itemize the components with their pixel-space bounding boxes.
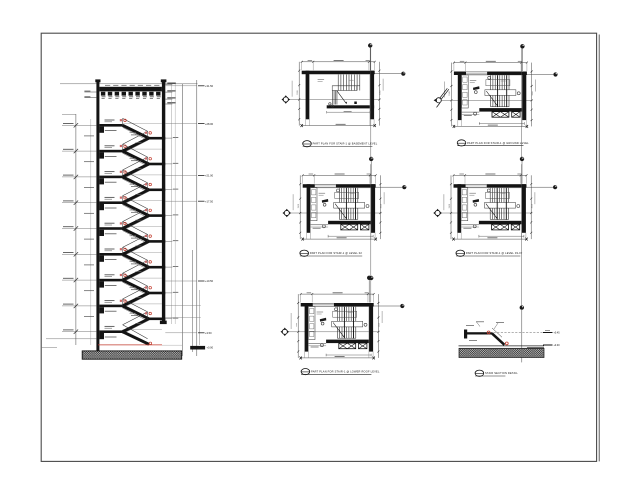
svg-text:+17.50: +17.50 (205, 199, 214, 203)
svg-text:+0.00: +0.00 (554, 344, 561, 347)
svg-text:1500: 1500 (298, 204, 300, 208)
svg-text:+28.00: +28.00 (205, 122, 214, 126)
svg-text:PART PLAN FOR STAIR-1 @ LEVEL: PART PLAN FOR STAIR-1 @ LEVEL 03-07 (466, 251, 523, 255)
svg-text:1500: 1500 (296, 323, 298, 327)
svg-text:PART PLAN FOR STAIR-1 @ GROUND: PART PLAN FOR STAIR-1 @ GROUND LEVEL (467, 141, 529, 145)
svg-text:3050: 3050 (532, 91, 534, 95)
svg-text:3050: 3050 (531, 204, 533, 208)
svg-text:1500: 1500 (449, 204, 451, 208)
svg-text:+10.50: +10.50 (205, 279, 214, 283)
svg-text:PART PLAN FOR STAIR-1 @ LEVEL: PART PLAN FOR STAIR-1 @ LEVEL 02 (310, 251, 363, 255)
svg-text:+21.00: +21.00 (205, 174, 214, 178)
svg-text:3050: 3050 (381, 204, 383, 208)
svg-text:3050: 3050 (380, 91, 382, 95)
svg-text:3050: 3050 (379, 323, 381, 327)
svg-text:PART PLAN FOR STAIR-1 @ BASEME: PART PLAN FOR STAIR-1 @ BASEMENT LEVEL (313, 142, 378, 146)
svg-text:STAIR SECTION DETAIL: STAIR SECTION DETAIL (485, 371, 518, 375)
svg-text:PART PLAN FOR STAIR-1 @ LOWER: PART PLAN FOR STAIR-1 @ LOWER ROOF LEVEL (311, 370, 380, 374)
svg-text:+3.50: +3.50 (205, 331, 212, 335)
svg-text:1500: 1500 (449, 91, 451, 95)
svg-text:1500: 1500 (297, 91, 299, 95)
svg-text:+31.50: +31.50 (205, 84, 214, 88)
svg-text:+0.00: +0.00 (207, 345, 214, 349)
svg-text:+0.45: +0.45 (554, 332, 561, 335)
